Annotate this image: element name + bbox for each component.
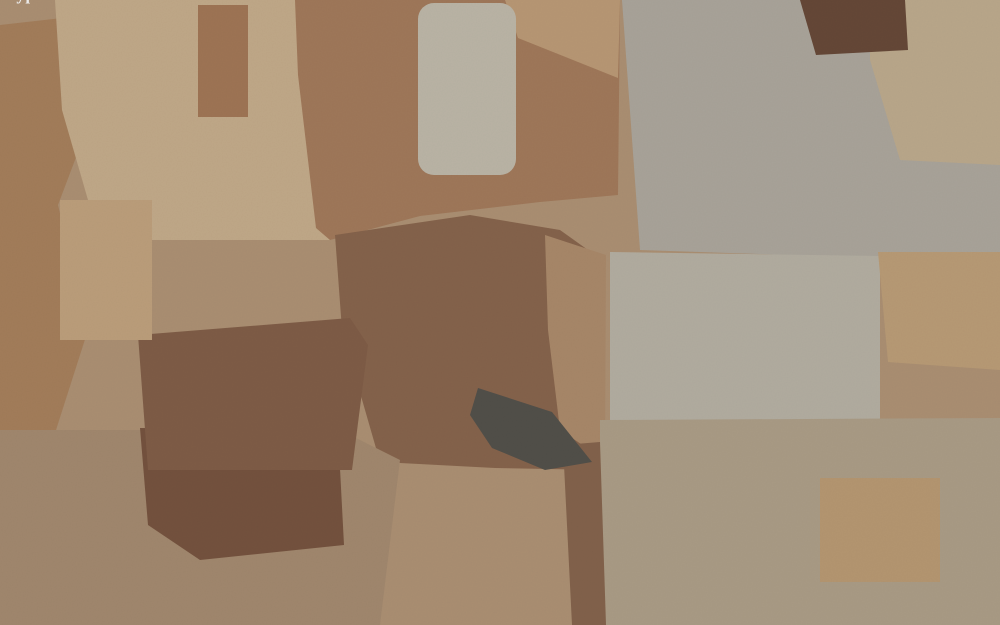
satellite-listing-image: BuySell Cyprus BuySell Cyprus [0, 0, 1000, 625]
satellite-map-image: BuySell Cyprus BuySell Cyprus [0, 0, 1000, 625]
grain-texture [0, 0, 1000, 625]
